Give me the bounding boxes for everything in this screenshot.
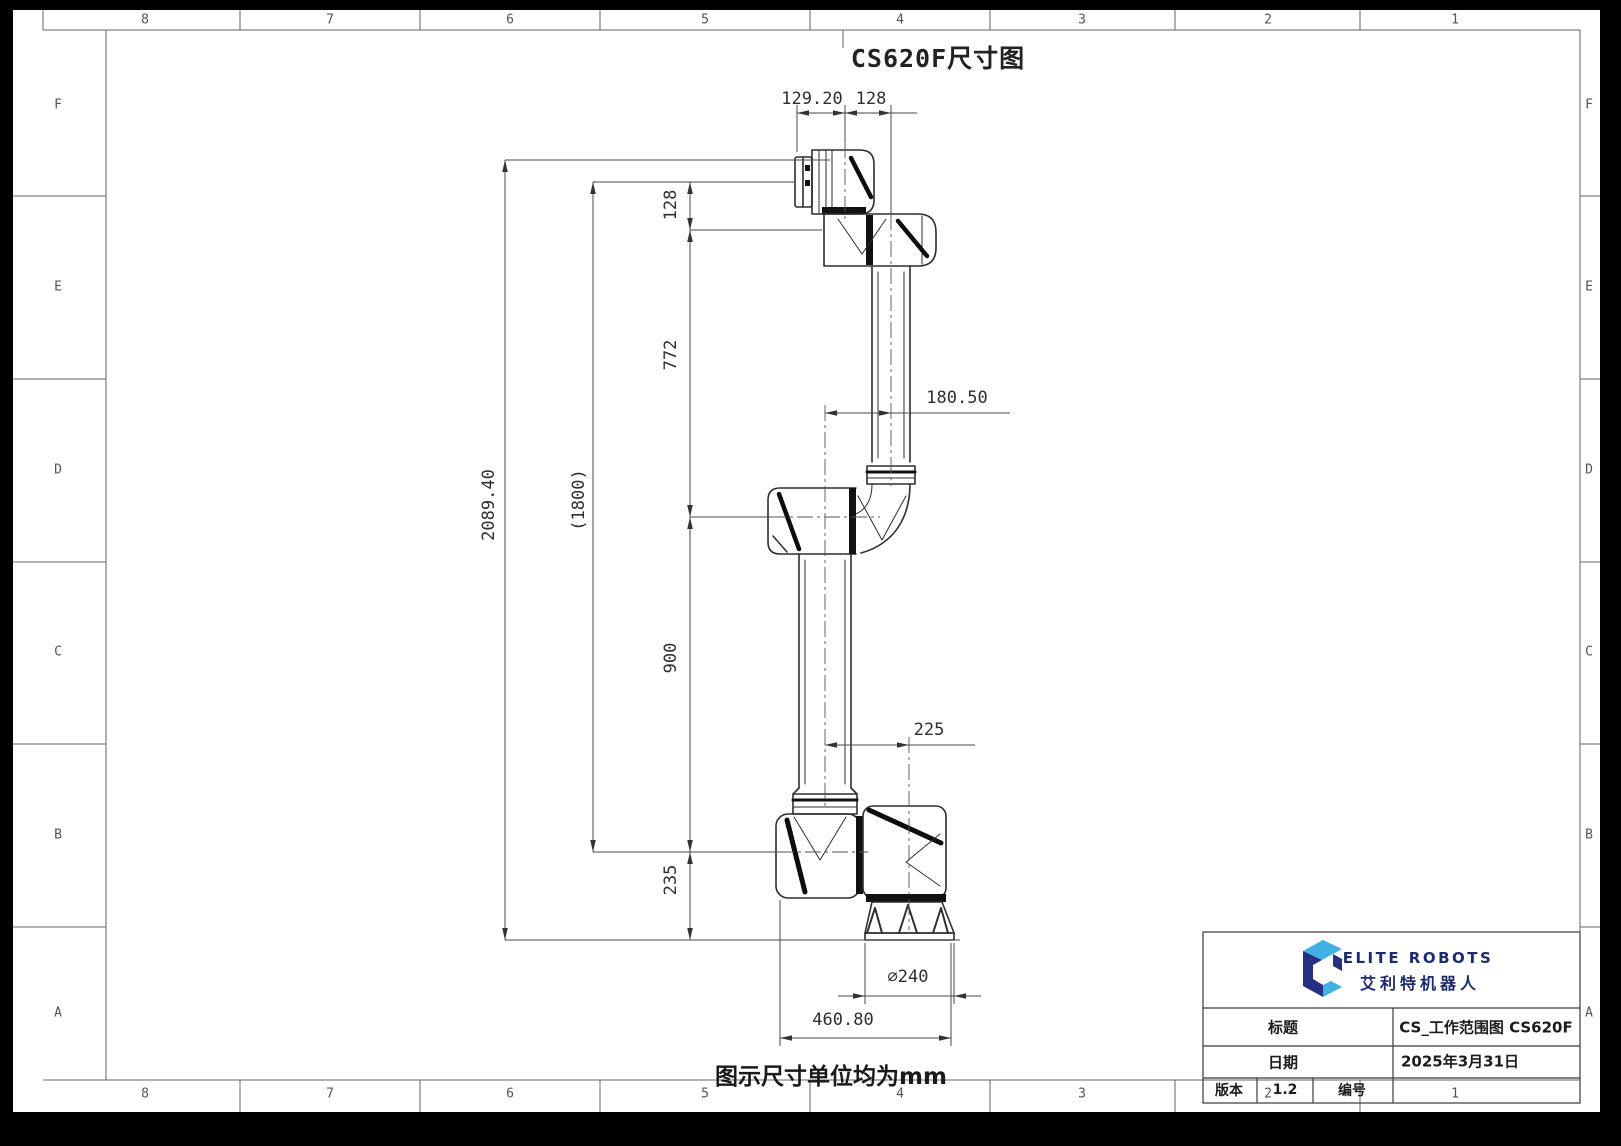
number-label: 编号 [1338,1080,1366,1100]
grid-row-label-right: B [1585,828,1593,843]
drawing-sheet-stage: CS620F尺寸图 129.20 128 2089.40 (1800) 128 … [0,0,1621,1146]
dim-flange-horizontal: 129.20 [781,89,842,109]
version-label: 版本 [1215,1080,1243,1100]
grid-col-label-top: 7 [326,13,334,28]
grid-col-label-bottom: 2 [1264,1087,1272,1102]
grid-row-label-left: D [54,463,62,478]
grid-col-label-bottom: 1 [1451,1087,1459,1102]
dim-upper-arm: 772 [661,340,681,371]
dim-base-diameter: ⌀240 [888,967,929,987]
grid-col-label-top: 5 [701,13,709,28]
grid-row-label-left: F [54,98,62,113]
grid-col-label-bottom: 5 [701,1087,709,1102]
grid-row-label-right: A [1585,1006,1593,1021]
grid-row-label-left: B [54,828,62,843]
grid-col-label-bottom: 8 [141,1087,149,1102]
grid-row-label-right: D [1585,463,1593,478]
paper-sheet [13,10,1600,1112]
grid-col-label-top: 1 [1451,13,1459,28]
dim-lower-arm: 900 [661,643,681,674]
grid-col-label-top: 4 [896,13,904,28]
grid-col-label-top: 2 [1264,13,1272,28]
units-note: 图示尺寸单位均为mm [715,1057,947,1091]
grid-row-label-right: C [1585,645,1593,660]
grid-col-label-top: 8 [141,13,149,28]
dim-shoulder-offset: 225 [914,720,945,740]
brand-name-cn: 艾利特机器人 [1360,970,1480,994]
date-value: 2025年3月31日 [1401,1051,1519,1072]
grid-row-label-left: E [54,280,62,295]
grid-col-label-top: 6 [506,13,514,28]
title-label: 标题 [1268,1017,1298,1038]
title-value: CS_工作范围图 CS620F [1399,1017,1572,1038]
brand-name-en: ELITE ROBOTS [1343,949,1494,967]
dim-wrist-horizontal: 128 [856,89,887,109]
page-title: CS620F尺寸图 [851,39,1025,75]
dim-total-height: 2089.40 [479,469,499,541]
grid-col-label-bottom: 4 [896,1087,904,1102]
grid-row-label-left: A [54,1006,62,1021]
grid-col-label-bottom: 6 [506,1087,514,1102]
dim-elbow-offset: 180.50 [926,388,987,408]
grid-row-label-right: E [1585,280,1593,295]
grid-row-label-right: F [1585,98,1593,113]
dim-reach-height: (1800) [569,469,589,530]
grid-row-label-left: C [54,645,62,660]
grid-col-label-bottom: 3 [1078,1087,1086,1102]
dim-flange-to-wrist2: 128 [661,190,681,221]
grid-col-label-bottom: 7 [326,1087,334,1102]
dim-base-height: 235 [661,865,681,896]
version-value: 1.2 [1273,1082,1298,1098]
date-label: 日期 [1268,1052,1298,1073]
grid-col-label-top: 3 [1078,13,1086,28]
dim-footprint-width: 460.80 [812,1010,873,1030]
